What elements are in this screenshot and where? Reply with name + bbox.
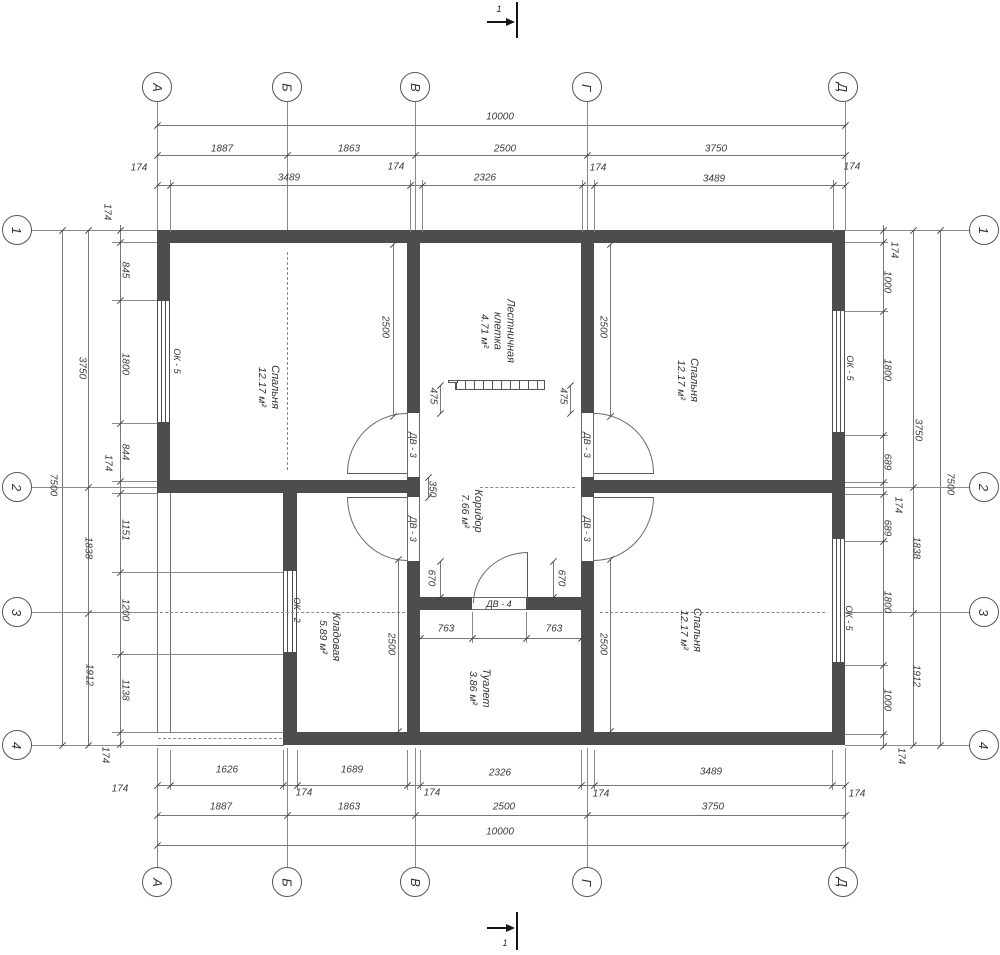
axis-bubble-right: 4 [969,730,999,760]
axis-label: Д [836,877,851,886]
room-label: Спальня12.17 м² [677,608,703,652]
window-label: ОК - 5 [845,355,855,380]
extension-line [112,732,283,733]
dimension-line [157,185,845,186]
extension-line [587,102,588,230]
dimension-label: 1626 [216,765,238,776]
wall [832,230,845,310]
wall [581,477,594,497]
room-area: 4.71 м² [478,299,491,363]
wall [157,480,420,493]
door-swing-arc [347,413,407,473]
dimension-label: 1912 [911,665,922,687]
axis-label: А [149,878,164,887]
extension-line [410,180,411,232]
section-mark-label-bottom: 1 [502,938,507,948]
axis-bubble-left: 3 [2,597,32,627]
door-leaf [347,473,407,474]
dimension-line [420,638,581,639]
dimension-label: 7500 [48,474,59,496]
dimension-label: 174 [103,455,114,472]
dimension-label: 1800 [120,353,131,375]
porch-edge-line [157,745,284,746]
dimension-label: 174 [388,162,405,173]
wall [407,561,420,732]
extension-line [112,654,283,655]
dimension-label: 174 [296,788,313,799]
wall [283,732,845,745]
dimension-label: 174 [590,163,607,174]
section-cut-arrow-bottom [506,924,515,932]
room-label: Лестничнаяклетка4.71 м² [478,299,517,363]
axis-bubble-top: Д [828,72,858,102]
extension-line [587,748,588,867]
axis-label: Б [280,83,295,91]
wall [581,480,845,493]
dimension-label: 1912 [84,664,95,686]
dimension-line [440,385,441,413]
dimension-label: 689 [882,520,893,537]
door-leaf [594,473,654,474]
door-label: ДВ - 3 [582,432,592,457]
extension-line [422,180,423,232]
dimension-label: 1151 [120,519,131,541]
axis-label: Г [579,83,594,90]
axis-label: Г [579,878,594,885]
extension-line [845,230,970,231]
extension-line [157,102,158,230]
extension-line [845,745,970,746]
room-label: Туалет3.86 м² [466,668,492,707]
window-glazing [832,310,845,433]
axis-label: 2 [976,483,991,490]
wall [526,597,581,610]
dimension-line [157,155,845,156]
dimension-label: 2500 [493,802,515,813]
window-label: ОК - 2 [292,597,302,622]
dimension-label: 3489 [703,174,725,185]
dimension-label: 1887 [210,802,232,813]
axis-dashed-line [160,612,405,613]
wall [581,561,594,732]
dimension-line [610,244,611,416]
extension-line [31,745,157,746]
wall [832,663,845,745]
dimension-label: 3750 [705,144,727,155]
dimension-label: 2500 [598,633,609,655]
dimension-label: 174 [889,242,900,259]
axis-label: 3 [9,608,24,615]
axis-bubble-top: А [142,72,172,102]
axis-bubble-left: 2 [2,472,32,502]
axis-label: 1 [976,226,991,233]
window-label: ОК - 5 [172,348,182,373]
dimension-label: 1863 [338,144,360,155]
floor-plan: 1 1 АБВГДАБВГД12341234100001887186325003… [0,0,1000,955]
dimension-label: 174 [849,789,866,800]
dimension-line [570,385,571,413]
room-area: 12.17 м² [255,365,268,409]
dimension-label: 1838 [83,537,94,559]
extension-line [845,748,846,867]
room-area: 7.66 м² [458,489,471,532]
dimension-label: 1138 [120,679,131,701]
dimension-tick [437,410,444,417]
room-area: 12.17 м² [677,608,690,652]
wall [283,653,297,732]
stair-post [448,380,458,383]
axis-bubble-bottom: Д [828,867,858,897]
dimension-label: 2326 [474,173,496,184]
wall [581,243,594,413]
dimension-line [157,845,845,846]
dimension-label: 174 [593,789,610,800]
axis-label: В [407,878,422,887]
dimension-line [440,561,441,597]
dimension-label: 3750 [913,419,924,441]
dimension-label: 670 [556,570,567,587]
dimension-label: 174 [131,163,148,174]
dimension-label: 1838 [911,537,922,559]
dimension-label: 3489 [278,173,300,184]
dimension-label: 670 [426,570,437,587]
dimension-label: 845 [120,262,131,279]
dimension-tick [567,410,574,417]
axis-dashed-line [600,612,825,613]
axis-bubble-bottom: Г [572,867,602,897]
dimension-label: 1887 [211,144,233,155]
dimension-label: 844 [120,444,131,461]
extension-line [287,748,288,867]
axis-bubble-right: 2 [969,472,999,502]
dimension-label: 174 [112,784,129,795]
axis-bubble-bottom: В [400,867,430,897]
dimension-label: 174 [102,204,113,221]
axis-dashed-line [480,487,575,488]
door-label: ДВ - 3 [582,516,592,541]
stair-flight-symbol [455,380,545,390]
room-label: Коридор7.66 м² [458,489,484,532]
axis-bubble-left: 4 [2,730,32,760]
section-cut-line-top [516,2,518,38]
dimension-line [157,125,845,126]
room-area: 5.89 м² [316,613,329,662]
axis-label: Д [836,82,851,91]
wall [407,477,420,497]
axis-label: 3 [976,608,991,615]
extension-line [845,612,970,613]
extension-line [170,180,171,232]
section-cut-line-bottom [516,912,518,950]
axis-bubble-top: Б [272,72,302,102]
extension-line [31,612,157,613]
dimension-label: 1800 [882,591,893,613]
dimension-line [553,561,554,597]
axis-bubble-top: Г [572,72,602,102]
extension-line [157,748,158,867]
door-label: ДВ - 3 [408,516,418,541]
axis-label: 4 [976,741,991,748]
door-swing-arc [594,497,654,561]
section-cut-arrow-top [506,18,515,26]
dimension-label: 3750 [77,357,88,379]
dimension-label: 1863 [338,802,360,813]
room-label: Спальня12.17 м² [674,358,700,402]
axis-label: 2 [9,483,24,490]
extension-line [594,180,595,232]
room-area: 12.17 м² [674,358,687,402]
door-swing-arc [594,413,654,473]
dimension-line [157,785,845,786]
dimension-label: 2326 [489,768,511,779]
dimension-label: 2500 [494,144,516,155]
dimension-label: 1200 [120,599,131,621]
wall [157,230,845,243]
door-swing-arc [473,552,528,603]
axis-label: 1 [9,226,24,233]
dimension-label: 174 [893,497,904,514]
section-mark-label-top: 1 [496,4,501,14]
room-label: Кладовая5.89 м² [316,613,342,662]
dimension-label: 10000 [486,112,514,123]
axis-dashed-line [287,252,288,470]
window-label: ОК - 5 [844,605,854,630]
dimension-line [393,244,394,416]
room-label: Спальня12.17 м² [255,365,281,409]
extension-line [112,572,283,573]
dimension-label: 174 [896,748,907,765]
dimension-line [610,559,611,731]
dimension-label: 1000 [882,689,893,711]
dimension-line [398,559,399,731]
door-swing-arc [347,497,407,561]
extension-line [582,180,583,232]
axis-label: 4 [9,741,24,748]
dimension-label: 1000 [882,271,893,293]
dimension-label: 174 [424,788,441,799]
porch-dashed-line [158,738,282,739]
extension-line [287,102,288,230]
dimension-label: 350 [427,481,438,498]
door-label: ДВ - 3 [408,432,418,457]
axis-bubble-bottom: А [142,867,172,897]
extension-line [31,230,157,231]
wall [420,597,472,610]
dimension-label: 7500 [945,473,956,495]
dimension-line [157,815,845,816]
dimension-label: 475 [428,388,439,405]
axis-bubble-bottom: Б [272,867,302,897]
axis-label: В [407,83,422,92]
dimension-label: 689 [882,454,893,471]
dimension-label: 2500 [386,633,397,655]
axis-bubble-left: 1 [2,215,32,245]
dimension-label: 10000 [486,827,514,838]
wall [283,493,297,570]
dimension-label: 174 [100,747,111,764]
porch-edge-line [157,493,158,732]
dimension-label: 3750 [702,802,724,813]
axis-label: А [149,83,164,92]
dimension-label: 1689 [341,765,363,776]
extension-line [415,748,416,867]
dimension-label: 1800 [882,359,893,381]
window-glazing [157,300,170,423]
dimension-label: 2500 [598,316,609,338]
wall [157,230,170,300]
axis-bubble-right: 3 [969,597,999,627]
room-area: 3.86 м² [466,668,479,707]
dimension-label: 475 [558,388,569,405]
wall [407,243,420,413]
extension-line [833,180,834,232]
dimension-label: 3489 [700,767,722,778]
extension-line [415,102,416,230]
dimension-label: 763 [546,624,563,635]
dimension-label: 763 [438,624,455,635]
door-label: ДВ - 4 [486,599,511,609]
dimension-label: 174 [844,162,861,173]
axis-bubble-right: 1 [969,215,999,245]
dimension-label: 2500 [380,316,391,338]
window-glazing [832,538,845,663]
axis-bubble-top: В [400,72,430,102]
axis-label: Б [280,878,295,886]
